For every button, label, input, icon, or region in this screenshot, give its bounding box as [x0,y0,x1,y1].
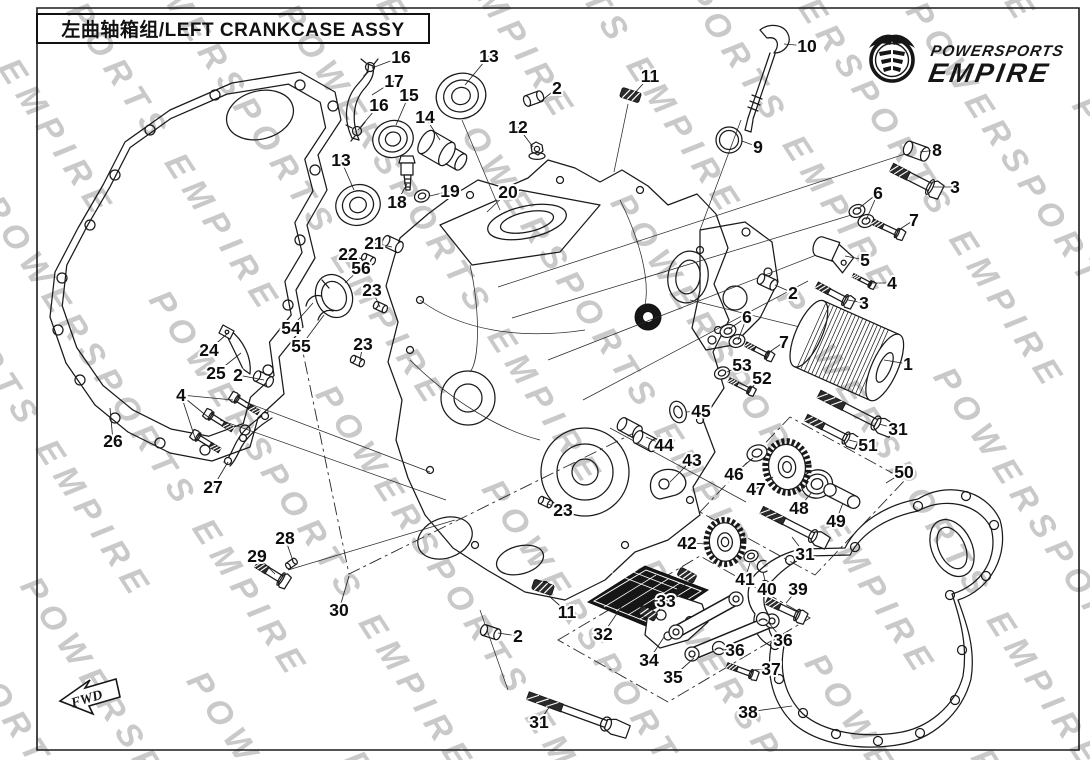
callout-label-41: 41 [735,569,755,589]
exploded-diagram: 1617161514132111210983131819202122562323… [0,0,1090,760]
part-11-plug-bottom [531,579,554,595]
part-36-nut-b [757,613,770,626]
callout-label-11: 11 [641,66,660,86]
part-9-oring [716,127,742,153]
callout-label-28: 28 [275,528,295,548]
sheet-border [37,8,1079,750]
fwd-arrow: FWD [40,662,130,722]
callout-label-32: 32 [593,624,613,644]
callout-label-50: 50 [894,462,914,482]
part-1-oil-filter [782,296,911,406]
logo-horn-right [889,35,915,48]
callout-label-25: 25 [206,363,226,383]
callout-label-53: 53 [732,355,752,375]
callout-label-10: 10 [797,36,817,56]
callout-label-12: 12 [508,117,528,137]
part-4-bolt-b [202,408,235,434]
part-16-clamp-upper [361,59,378,76]
callout-label-27: 27 [203,477,222,497]
callout-label-39: 39 [788,579,808,599]
callout-label-3: 3 [950,177,960,197]
part-5-sensor [808,235,857,275]
callout-label-14: 14 [415,107,435,127]
logo-text-bottom: EMPIRE [926,57,1053,88]
callout-label-56: 56 [351,258,371,278]
callout-label-49: 49 [826,511,846,531]
part-54-shell [306,296,321,306]
callout-label-40: 40 [757,579,777,599]
callout-label-46: 46 [724,464,744,484]
part-10-dipstick [745,25,789,132]
callout-label-43: 43 [682,450,702,470]
callout-label-16: 16 [369,95,389,115]
part-23-pin-a [372,301,388,314]
callout-label-29: 29 [247,546,267,566]
callout-label-4: 4 [887,273,897,293]
callout-label-36: 36 [725,640,745,660]
callout-label-30: 30 [329,600,349,620]
callout-label-51: 51 [858,435,878,455]
callout-label-23: 23 [362,280,382,300]
callout-label-31: 31 [888,419,908,439]
part-41-washer [742,548,759,563]
callout-label-6: 6 [742,307,752,327]
brand-logo: POWERSPORTS EMPIRE [852,22,1077,92]
part-36-nut-a [713,642,726,655]
callout-label-5: 5 [860,250,870,270]
callout-label-18: 18 [387,192,407,212]
part-13-bearing-left [330,179,385,231]
part-2-pin-top [522,90,545,107]
part-46-washer [745,442,770,464]
callout-label-38: 38 [738,702,758,722]
callout-label-42: 42 [677,533,697,553]
page-title: 左曲轴箱组/LEFT CRANKCASE ASSY [61,15,404,42]
part-53-washer [713,365,731,381]
callout-label-13: 13 [331,150,351,170]
callout-label-9: 9 [753,137,763,157]
callout-label-54: 54 [281,318,301,338]
callout-label-23: 23 [353,334,373,354]
group-outlines [300,338,905,702]
part-2-pin-right [756,273,779,292]
callout-label-21: 21 [364,233,384,253]
part-2-pin-bottom [479,624,502,641]
callout-label-2: 2 [788,283,798,303]
callout-label-3: 3 [859,293,869,313]
callout-label-34: 34 [639,650,659,670]
part-14-tensioner [414,128,471,176]
part-40-clip [757,560,767,572]
callout-label-31: 31 [529,712,549,732]
callout-label-52: 52 [752,368,772,388]
part-38-right-gasket [748,490,1002,747]
part-42-gear [705,519,745,566]
part-43-guide [650,469,685,499]
callout-label-31: 31 [795,544,815,564]
callout-label-15: 15 [399,85,419,105]
callout-label-44: 44 [654,435,674,455]
callout-label-33: 33 [656,591,676,611]
callout-label-35: 35 [663,667,683,687]
parts-catalog-sheet: POWERSPORTS EMPIRE POWERSPORTS EMPIRE PO… [0,0,1090,760]
callout-label-47: 47 [746,479,765,499]
logo-emblem-ring [871,39,913,81]
callout-label-7: 7 [909,210,919,230]
callout-label-19: 19 [440,181,460,201]
part-37-bolt [725,660,759,681]
part-4-bolt-a [228,391,261,417]
callout-label-11: 11 [558,602,577,622]
callout-label-36: 36 [773,630,793,650]
part-55-shell [318,310,333,320]
part-19-washer [413,188,431,204]
callout-label-2: 2 [233,365,243,385]
callout-label-16: 16 [391,47,411,67]
leader-line [181,395,233,400]
callout-label-23: 23 [553,500,573,520]
part-26-left-gasket [50,72,341,461]
callout-label-7: 7 [779,332,789,352]
part-4-bolt-right [851,272,876,290]
part-45-cap [667,399,689,425]
group-outline-30 [300,338,640,574]
callout-label-1: 1 [903,354,913,374]
part-3-bolt-top [888,160,945,201]
callout-label-37: 37 [761,659,780,679]
callout-label-20: 20 [498,182,518,202]
part-18-sensor [399,156,415,190]
title-box: 左曲轴箱组/LEFT CRANKCASE ASSY [36,13,430,44]
callout-label-6: 6 [873,183,883,203]
callout-label-4: 4 [176,385,186,405]
callout-label-26: 26 [103,431,123,451]
callout-label-2: 2 [552,78,562,98]
part-51-bolt [803,411,861,450]
part-28-pin [285,557,299,569]
part-27-bracket [224,412,272,466]
callout-label-55: 55 [291,336,311,356]
part-23-pin-b [349,355,365,368]
part-13-bearing-top [430,67,491,125]
part-47-gear [763,439,811,495]
callout-label-2: 2 [513,626,523,646]
callout-label-13: 13 [479,46,499,66]
callout-labels: 1617161514132111210983131819202122562323… [103,36,960,732]
part-23-pin-c [537,496,553,509]
callout-label-45: 45 [691,401,711,421]
part-2-pin-left [252,370,275,389]
callout-label-8: 8 [932,140,942,160]
logo-monogram [879,50,905,72]
callout-label-24: 24 [199,340,219,360]
callout-label-48: 48 [789,498,809,518]
